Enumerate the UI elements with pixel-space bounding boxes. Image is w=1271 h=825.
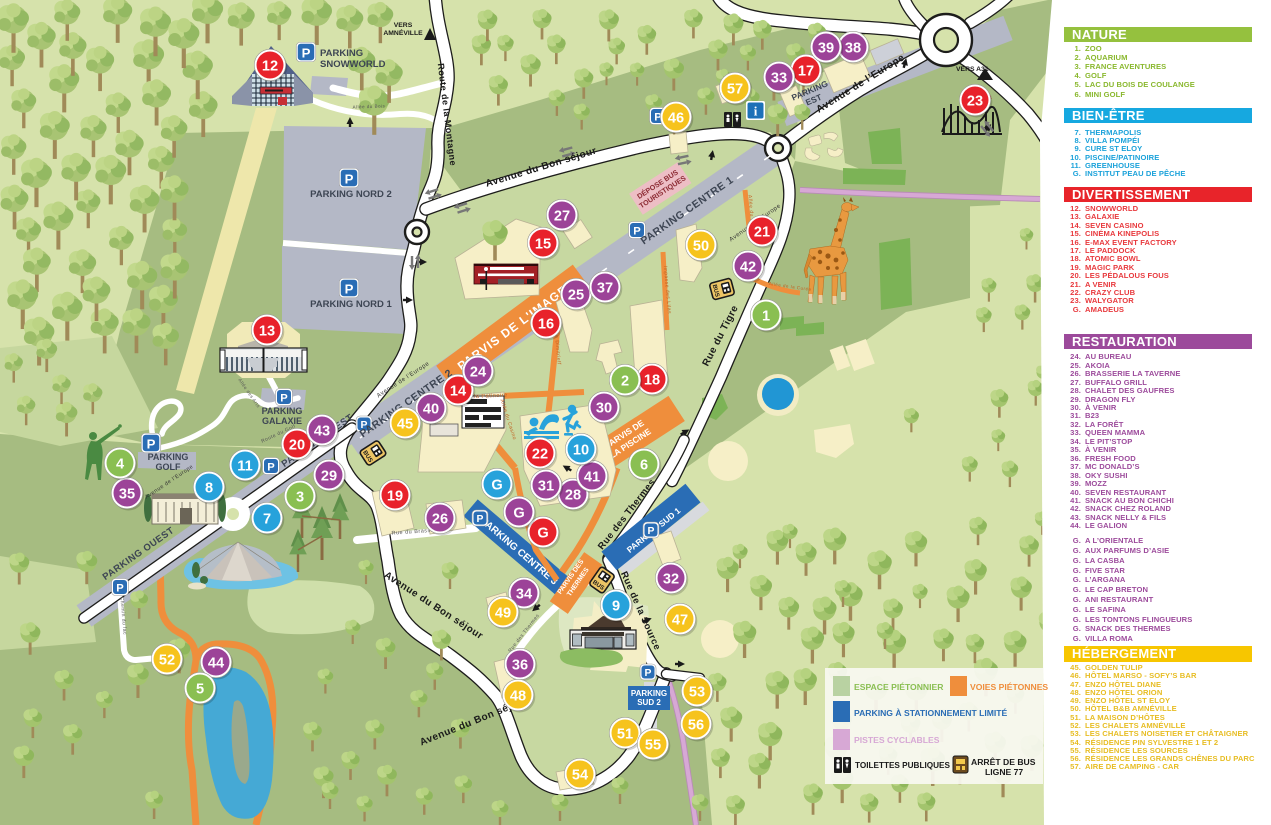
svg-text:TOILETTES PUBLIQUES: TOILETTES PUBLIQUES: [855, 761, 950, 770]
svg-text:P: P: [477, 514, 484, 525]
svg-text:P: P: [147, 436, 156, 451]
svg-text:13: 13: [259, 323, 275, 339]
svg-text:P: P: [645, 668, 652, 679]
svg-text:1: 1: [762, 308, 770, 324]
svg-text:P: P: [345, 171, 354, 186]
svg-text:46: 46: [668, 110, 684, 126]
svg-text:VOIES PIÉTONNES: VOIES PIÉTONNES: [970, 682, 1048, 692]
svg-text:PARKING À STATIONNEMENT LIMITÉ: PARKING À STATIONNEMENT LIMITÉ: [854, 708, 1008, 718]
svg-text:P: P: [280, 392, 288, 404]
svg-text:54: 54: [572, 767, 589, 783]
svg-text:56: 56: [688, 717, 704, 733]
svg-text:P: P: [648, 526, 655, 537]
svg-text:27: 27: [554, 208, 570, 224]
svg-text:P: P: [345, 281, 354, 296]
svg-text:42: 42: [740, 259, 756, 275]
svg-text:30: 30: [596, 400, 612, 416]
svg-text:G: G: [491, 477, 502, 493]
svg-text:7: 7: [263, 511, 271, 527]
svg-text:P: P: [267, 461, 275, 473]
svg-text:4: 4: [116, 456, 125, 472]
svg-text:20: 20: [289, 437, 305, 453]
svg-text:38: 38: [845, 40, 861, 56]
svg-text:25: 25: [568, 287, 584, 303]
svg-text:G: G: [537, 525, 548, 541]
svg-text:11: 11: [237, 458, 252, 474]
svg-text:48: 48: [510, 688, 526, 704]
svg-text:26: 26: [432, 511, 448, 527]
svg-text:AMNÉVILLE: AMNÉVILLE: [383, 28, 423, 37]
svg-text:PARKING: PARKING: [320, 48, 363, 59]
svg-text:47: 47: [672, 612, 688, 628]
svg-text:8: 8: [205, 480, 213, 496]
svg-text:PARKING: PARKING: [631, 689, 667, 698]
svg-text:51: 51: [617, 726, 633, 742]
svg-text:31: 31: [538, 478, 554, 494]
svg-text:3: 3: [296, 489, 304, 505]
svg-text:21: 21: [754, 224, 770, 240]
svg-text:39: 39: [818, 40, 834, 56]
svg-text:ESPACE PIÉTONNIER: ESPACE PIÉTONNIER: [854, 682, 944, 692]
svg-text:32: 32: [663, 571, 679, 587]
svg-text:GALAXIE: GALAXIE: [262, 416, 302, 426]
svg-text:33: 33: [771, 70, 787, 86]
svg-text:LIGNE 77: LIGNE 77: [985, 767, 1023, 777]
svg-text:17: 17: [798, 63, 814, 79]
svg-text:23: 23: [967, 93, 983, 109]
svg-text:28: 28: [565, 487, 581, 503]
svg-text:15: 15: [535, 236, 551, 252]
svg-text:i: i: [754, 104, 758, 119]
svg-text:GOLF: GOLF: [156, 462, 181, 472]
svg-text:G: G: [513, 505, 524, 521]
svg-text:SUD 2: SUD 2: [637, 698, 661, 707]
svg-text:6: 6: [640, 457, 648, 473]
svg-text:37: 37: [597, 280, 613, 296]
svg-text:36: 36: [512, 657, 528, 673]
svg-text:50: 50: [693, 238, 709, 254]
svg-text:22: 22: [532, 446, 548, 462]
svg-text:SNOWWORLD: SNOWWORLD: [320, 59, 386, 70]
svg-text:P: P: [116, 582, 124, 594]
svg-text:2: 2: [621, 373, 629, 389]
svg-text:PISTES CYCLABLES: PISTES CYCLABLES: [854, 735, 940, 745]
svg-text:P: P: [302, 45, 311, 60]
svg-text:5: 5: [196, 681, 204, 697]
svg-text:29: 29: [321, 468, 337, 484]
svg-text:PARKING NORD 2: PARKING NORD 2: [310, 189, 392, 200]
svg-text:43: 43: [314, 423, 330, 439]
svg-text:24: 24: [470, 364, 487, 380]
svg-text:VERS: VERS: [394, 22, 413, 29]
svg-text:40: 40: [423, 401, 439, 417]
svg-text:45: 45: [397, 416, 413, 432]
svg-text:49: 49: [495, 605, 511, 621]
svg-text:PARKING NORD 1: PARKING NORD 1: [310, 299, 392, 310]
svg-text:9: 9: [612, 598, 620, 614]
svg-text:44: 44: [208, 655, 225, 671]
svg-text:18: 18: [644, 372, 660, 388]
svg-text:10: 10: [573, 442, 589, 458]
svg-text:ARRÊT DE BUS: ARRÊT DE BUS: [971, 756, 1036, 767]
svg-text:12: 12: [262, 58, 278, 74]
svg-text:16: 16: [538, 316, 554, 332]
svg-text:14: 14: [450, 383, 467, 399]
svg-text:41: 41: [584, 469, 600, 485]
svg-text:53: 53: [689, 684, 705, 700]
svg-text:57: 57: [727, 81, 743, 97]
svg-text:34: 34: [516, 586, 533, 602]
svg-text:35: 35: [119, 486, 135, 502]
svg-text:55: 55: [645, 737, 661, 753]
svg-text:52: 52: [159, 652, 175, 668]
svg-text:PARKING: PARKING: [262, 406, 303, 416]
svg-text:PARKING: PARKING: [148, 452, 189, 462]
svg-text:19: 19: [387, 488, 403, 504]
